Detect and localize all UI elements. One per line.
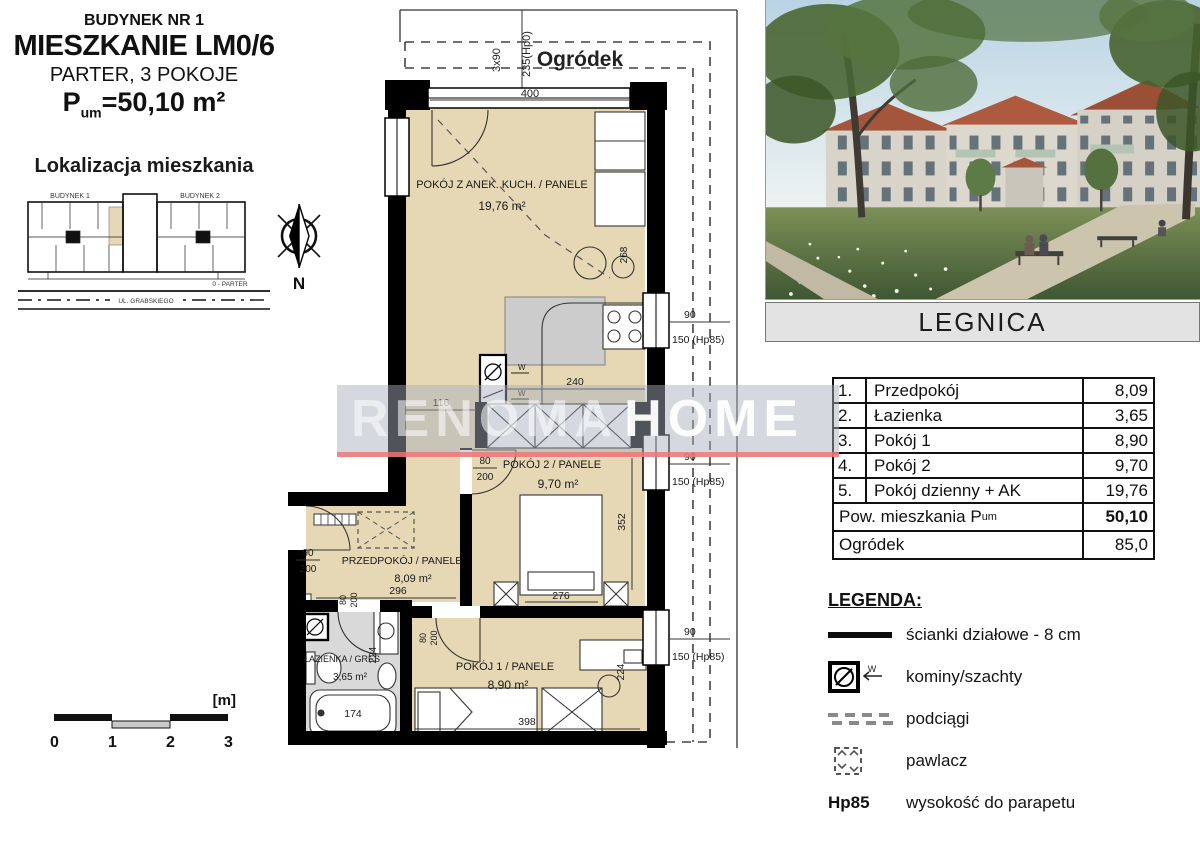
scale-tick-1: 1 [108, 734, 117, 752]
legend: LEGENDA: ścianki działowe - 8 cm W komin… [828, 590, 1188, 828]
row-value: 9,70 [1084, 456, 1153, 476]
dim-398: 398 [518, 716, 536, 728]
legend-hp-label: wysokość do parapetu [906, 793, 1075, 813]
legend-item-pawlacz: pawlacz [828, 744, 1188, 778]
dim-window-150: 150 (Hp85) [672, 334, 725, 346]
scale-bar: [m] 0 1 2 3 [40, 692, 240, 762]
scale-tick-3: 3 [224, 734, 233, 752]
living-room-label: POKÓJ Z ANEK. KUCH. / PANELE [416, 178, 588, 191]
dim-200: 200 [349, 592, 359, 607]
table-row: 2. Łazienka 3,65 [834, 404, 1153, 429]
dim-268: 268 [619, 246, 630, 263]
hall-label: PRZEDPOKÓJ / PANELE [342, 554, 463, 567]
area-table: 1. Przedpokój 8,09 2. Łazienka 3,65 3. P… [832, 377, 1155, 560]
building2-label: BUDYNEK 2 [180, 193, 220, 200]
street-label: UL. GRABSKIEGO [118, 298, 173, 305]
table-row: 1. Przedpokój 8,09 [834, 379, 1153, 404]
garden-value: 85,0 [1084, 535, 1153, 555]
street: UL. GRABSKIEGO [18, 291, 270, 309]
dim-276: 276 [552, 590, 570, 602]
location-diagram: BUDYNEK 1 BUDYNEK 2 0 - PARTER [18, 185, 270, 317]
table-total-row: Pow. mieszkania Pum 50,10 [834, 504, 1153, 532]
room1-label: POKÓJ 1 / PANELE [456, 660, 554, 673]
legend-item-walls: ścianki działowe - 8 cm [828, 625, 1188, 645]
stair-block [123, 194, 157, 272]
legend-chimneys-label: kominy/szachty [906, 667, 1022, 687]
page-title: BUDYNEK NR 1 MIESZKANIE LM0/6 PARTER, 3 … [0, 12, 288, 120]
building-title: BUDYNEK NR 1 [0, 12, 288, 30]
row-name: Pokój 2 [867, 454, 1084, 477]
brochure-page: BUDYNEK NR 1 MIESZKANIE LM0/6 PARTER, 3 … [0, 0, 1200, 849]
photo-caption: LEGNICA [765, 302, 1200, 342]
pawlacz-symbol-icon [828, 744, 906, 778]
dim-200: 200 [300, 564, 317, 575]
scale-unit: [m] [213, 692, 236, 709]
area-line: Pum=50,10 m² [0, 87, 288, 120]
dim-90: 90 [302, 548, 314, 559]
row-number: 4. [834, 454, 867, 477]
legend-walls-label: ścianki działowe - 8 cm [906, 625, 1081, 645]
total-value: 50,10 [1084, 507, 1153, 527]
legend-item-hp: Hp85 wysokość do parapetu [828, 793, 1188, 813]
dim-200: 200 [477, 472, 494, 483]
watermark-renoma: RENOMA [351, 393, 618, 445]
legend-item-chimneys: W kominy/szachty [828, 660, 1188, 694]
watermark-home: HOME [624, 393, 804, 445]
dim-3x90: 3x90 [491, 48, 503, 72]
estate-photo [765, 0, 1200, 300]
building1-label: BUDYNEK 1 [50, 193, 90, 200]
table-row: 5. Pokój dzienny + AK 19,76 [834, 479, 1153, 504]
table-garden-row: Ogródek 85,0 [834, 532, 1153, 558]
legend-title: LEGENDA: [828, 590, 1188, 611]
scale-tick-0: 0 [50, 734, 59, 752]
living-room-area: 19,76 m² [478, 199, 525, 213]
dim-window-150: 150 (Hp85) [672, 651, 725, 663]
dim-296: 296 [389, 585, 407, 597]
table-row: 3. Pokój 1 8,90 [834, 429, 1153, 454]
bathroom-area: 3,65 m² [333, 672, 368, 683]
vent-label: W [518, 363, 526, 372]
room2-area: 9,70 m² [538, 477, 579, 491]
row-value: 19,76 [1084, 481, 1153, 501]
bathroom-label: ŁAZIENKA / GRES [304, 654, 380, 664]
row-value: 8,09 [1084, 381, 1153, 401]
row-name: Pokój 1 [867, 429, 1084, 452]
city-label: LEGNICA [918, 307, 1046, 338]
legend-item-beams: podciągi [828, 709, 1188, 729]
dim-174: 174 [344, 708, 362, 720]
row-name: Łazienka [867, 404, 1084, 427]
floor-subtitle: PARTER, 3 POKOJE [0, 64, 288, 87]
wall-symbol-icon [828, 632, 906, 638]
dim-window-90: 90 [684, 626, 696, 638]
scale-tick-2: 2 [166, 734, 175, 752]
apartment-divisions [28, 202, 245, 279]
dim-80: 80 [479, 456, 491, 467]
scale-bar-graphic [40, 712, 240, 730]
row-number: 5. [834, 479, 867, 502]
beams-symbol-icon [828, 711, 906, 727]
room2-label: POKÓJ 2 / PANELE [503, 458, 601, 471]
table-row: 4. Pokój 2 9,70 [834, 454, 1153, 479]
watermark: RENOMA HOME [337, 385, 839, 457]
dim-window-90: 90 [684, 309, 696, 321]
dim-224: 224 [616, 663, 627, 680]
hall-area: 8,09 m² [394, 573, 432, 585]
hp-code: Hp85 [828, 793, 906, 813]
row-name: Przedpokój [867, 379, 1084, 402]
highlighted-unit [109, 207, 123, 245]
dim-400: 400 [521, 88, 539, 100]
parter-label: 0 - PARTER [212, 281, 247, 288]
dim-window-150: 150 (Hp85) [672, 476, 725, 488]
dim-200: 200 [429, 630, 439, 645]
dim-80: 80 [418, 633, 428, 643]
dim-352: 352 [616, 513, 628, 531]
room1-area: 8,90 m² [488, 678, 529, 692]
row-value: 8,90 [1084, 431, 1153, 451]
garden-label: Ogródek [537, 48, 624, 71]
apartment-title: MIESZKANIE LM0/6 [0, 30, 288, 63]
chimney-symbol-icon: W [828, 660, 906, 694]
row-name: Pokój dzienny + AK [867, 479, 1084, 502]
dim-80: 80 [338, 595, 348, 605]
legend-beams-label: podciągi [906, 709, 969, 729]
garden-label: Ogródek [834, 532, 1084, 558]
dim-235: 235(Hp0) [521, 31, 533, 77]
total-label: Pow. mieszkania Pum [834, 504, 1084, 530]
legend-pawlacz-label: pawlacz [906, 751, 967, 771]
row-value: 3,65 [1084, 406, 1153, 426]
location-title: Lokalizacja mieszkania [0, 155, 288, 178]
